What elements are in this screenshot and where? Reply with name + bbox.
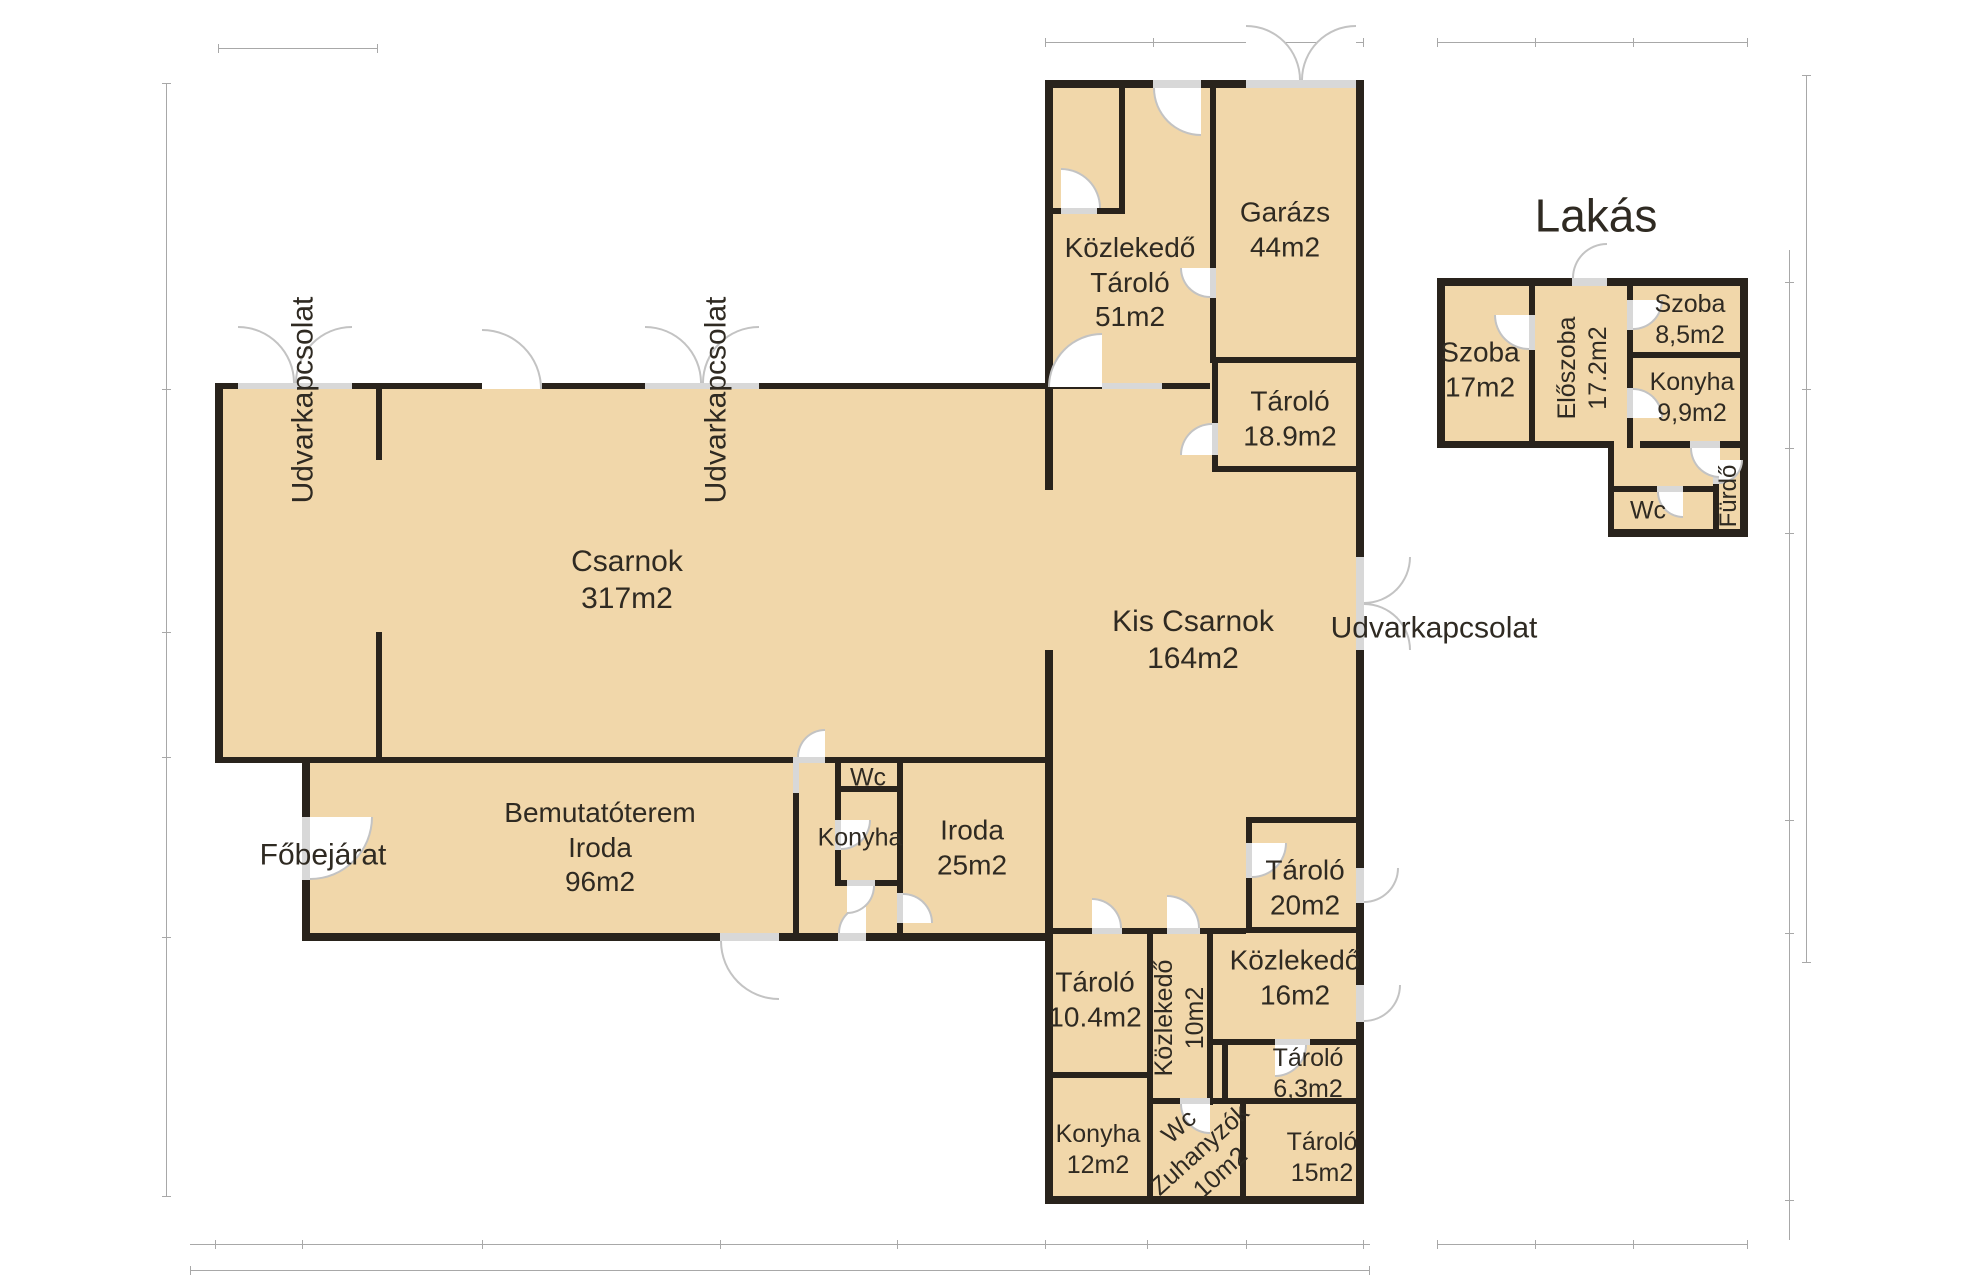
door-opening: [1167, 928, 1200, 934]
dimension-line: [1789, 250, 1790, 1240]
wall-segment: [1633, 352, 1740, 358]
door-opening: [793, 757, 799, 793]
room-name: Előszoba: [1552, 317, 1583, 420]
wall-segment: [1045, 928, 1092, 934]
wall-segment: [1607, 278, 1748, 286]
dimension-tick: [1437, 38, 1438, 47]
wall-segment: [1529, 286, 1535, 315]
room-area: 17m2: [1440, 370, 1519, 405]
room-area: 164m2: [1112, 640, 1274, 677]
wall-segment: [376, 383, 382, 460]
wall-segment: [1246, 927, 1364, 933]
door-opening: [1061, 208, 1097, 214]
room-name: Csarnok: [571, 543, 683, 580]
dimension-line: [1437, 1244, 1748, 1245]
door-opening: [797, 757, 825, 763]
site-label-udvarkapcsolat-mid: Udvarkapcsolat: [697, 297, 734, 504]
wall-segment: [1045, 650, 1053, 1203]
wall-segment: [1246, 817, 1364, 823]
door-swing-arc: [1364, 985, 1401, 1022]
room-area: 9,9m2: [1650, 398, 1735, 429]
dimension-tick: [302, 1240, 303, 1249]
room-area: 18.9m2: [1243, 419, 1336, 454]
room-area: 6,3m2: [1273, 1074, 1344, 1105]
dimension-tick: [218, 44, 219, 53]
dimension-tick: [190, 1266, 191, 1275]
door-swing-arc: [1301, 25, 1356, 80]
wall-segment: [1201, 80, 1246, 88]
wall-segment: [352, 383, 482, 389]
room-name: Közlekedő: [1230, 943, 1361, 978]
room-name: Tároló: [1287, 1127, 1358, 1158]
room-name: Tároló: [1048, 965, 1141, 1000]
dimension-tick: [1802, 389, 1811, 390]
dimension-tick: [1153, 38, 1154, 47]
door-opening: [1102, 383, 1162, 389]
room-name: Konyha: [1650, 367, 1735, 398]
wall-segment: [1614, 486, 1657, 492]
room-label-wc-lakas: Wc: [1630, 496, 1666, 527]
room-name: Iroda: [504, 831, 695, 866]
dimension-tick: [1147, 1240, 1148, 1249]
room-area: 17.2m2: [1583, 317, 1614, 420]
dimension-tick: [162, 1196, 171, 1197]
room-area: 10m2: [1180, 960, 1211, 1077]
dimension-line: [190, 1244, 1370, 1245]
wall-segment: [1212, 466, 1364, 472]
room-area: 8,5m2: [1655, 320, 1726, 351]
door-swing-arc: [1572, 243, 1607, 278]
wall-segment: [1045, 208, 1061, 214]
room-label-kozlekedo10: Közlekedő 10m2: [1149, 960, 1211, 1077]
room-name: Szoba: [1440, 335, 1519, 370]
door-opening: [1212, 423, 1218, 455]
dimension-tick: [162, 757, 171, 758]
door-opening: [1356, 868, 1364, 903]
wall-segment: [1356, 650, 1364, 823]
door-opening: [1092, 928, 1122, 934]
dimension-tick: [162, 389, 171, 390]
door-swing-arc: [1364, 868, 1399, 903]
door-opening: [1210, 268, 1216, 298]
room-label-tarolo15: Tároló 15m2: [1287, 1127, 1358, 1189]
wall-segment: [542, 383, 645, 389]
site-label-udvarkapcsolat-left: Udvarkapcsolat: [284, 297, 321, 504]
door-swing-arc: [645, 326, 702, 383]
dimension-tick: [1437, 1240, 1438, 1249]
room-name: Bemutatóterem: [504, 796, 695, 831]
room-name: Szoba: [1655, 289, 1726, 320]
dimension-tick: [162, 83, 171, 84]
room-area: 15m2: [1287, 1158, 1358, 1189]
room-name: Tároló: [1273, 1043, 1344, 1074]
wall-segment: [1356, 478, 1364, 557]
dimension-tick: [897, 1240, 898, 1249]
dimension-tick: [1802, 962, 1811, 963]
wall-segment: [1216, 357, 1356, 363]
room-name: Konyha: [1056, 1119, 1141, 1150]
room-name: Iroda: [937, 813, 1007, 848]
dimension-tick: [1747, 38, 1748, 47]
room-area: 25m2: [937, 848, 1007, 883]
wall-segment: [1356, 823, 1364, 868]
wall-segment: [793, 793, 799, 941]
door-opening: [1153, 80, 1201, 88]
door-opening: [1572, 278, 1607, 286]
dimension-tick: [720, 1240, 721, 1249]
dimension-tick: [1369, 1266, 1370, 1275]
room-label-konyha12: Konyha 12m2: [1056, 1119, 1141, 1181]
room-label-kozlekedo-tarolo: Közlekedő Tároló 51m2: [1065, 231, 1196, 335]
wall-segment: [302, 880, 310, 941]
wall-segment: [302, 933, 720, 941]
room-label-iroda: Iroda 25m2: [937, 813, 1007, 882]
door-swing-arc: [1364, 557, 1411, 604]
door-opening: [838, 933, 866, 941]
wall-segment: [1122, 928, 1167, 934]
dimension-tick: [1785, 282, 1794, 283]
wall-segment: [1356, 903, 1364, 933]
wall-segment: [1051, 1072, 1147, 1078]
room-name: Tároló: [1065, 266, 1196, 301]
dimension-line: [1806, 75, 1807, 963]
wall-segment: [1162, 383, 1210, 389]
wall-segment: [1210, 88, 1216, 268]
dimension-tick: [162, 937, 171, 938]
wall-segment: [1627, 330, 1633, 388]
door-opening: [720, 933, 779, 941]
room-label-kis-csarnok: Kis Csarnok 164m2: [1112, 603, 1274, 677]
dimension-tick: [162, 632, 171, 633]
dimension-tick: [1363, 1240, 1364, 1249]
dimension-line: [218, 48, 378, 49]
room-label-tarolo63: Tároló 6,3m2: [1273, 1043, 1344, 1105]
wall-segment: [1627, 418, 1633, 448]
room-label-bemutatoterem: Bemutatóterem Iroda 96m2: [504, 796, 695, 900]
wall-segment: [1212, 363, 1218, 423]
room-name: Kis Csarnok: [1112, 603, 1274, 640]
dimension-tick: [1535, 1240, 1536, 1249]
wall-segment: [1246, 823, 1252, 843]
door-opening: [1529, 315, 1535, 350]
dimension-tick: [1045, 38, 1046, 47]
door-opening: [1690, 441, 1720, 448]
wall-segment: [779, 933, 838, 941]
wall-segment: [1437, 278, 1572, 286]
wall-segment: [1437, 441, 1608, 448]
wall-segment: [835, 880, 847, 886]
wall-segment: [1640, 441, 1690, 448]
dimension-line: [166, 83, 167, 1197]
door-swing-arc: [720, 941, 779, 1000]
dimension-tick: [1785, 448, 1794, 449]
room-name: Tároló: [1265, 853, 1344, 888]
wall-segment: [1356, 80, 1364, 478]
dimension-tick: [1363, 38, 1364, 47]
door-swing-arc: [1246, 25, 1301, 80]
wall-segment: [759, 383, 1053, 389]
room-area: 51m2: [1065, 300, 1196, 335]
dimension-tick: [215, 1240, 216, 1249]
room-label-tarolo104: Tároló 10.4m2: [1048, 965, 1141, 1034]
room-area: 10.4m2: [1048, 1000, 1141, 1035]
room-area: 20m2: [1265, 888, 1344, 923]
wall-segment: [875, 880, 903, 886]
room-name: Közlekedő: [1149, 960, 1180, 1077]
dimension-tick: [1747, 1240, 1748, 1249]
room-label-konyha99: Konyha 9,9m2: [1650, 367, 1735, 429]
dimension-tick: [1785, 1200, 1794, 1201]
room-label-szoba17: Szoba 17m2: [1440, 335, 1519, 404]
wall-segment: [1045, 80, 1153, 88]
dimension-tick: [1785, 933, 1794, 934]
dimension-tick: [1802, 75, 1811, 76]
room-label-konyha-kicsi: Konyha: [818, 823, 903, 854]
wall-segment: [1045, 80, 1053, 490]
dimension-tick: [1633, 1240, 1634, 1249]
dimension-tick: [1785, 820, 1794, 821]
wall-segment: [1210, 298, 1216, 363]
dimension-line: [1437, 42, 1748, 43]
wall-segment: [897, 923, 903, 941]
wall-segment: [1097, 208, 1125, 214]
dimension-tick: [1633, 38, 1634, 47]
site-label-fobejarat: Főbejárat: [260, 836, 387, 873]
room-area: 317m2: [571, 580, 683, 617]
wall-segment: [866, 933, 1047, 941]
wall-segment: [215, 383, 223, 763]
wall-segment: [1529, 350, 1535, 448]
dimension-line: [190, 1270, 1370, 1271]
room-label-tarolo189: Tároló 18.9m2: [1243, 384, 1336, 453]
room-label-furdo: Fürdő: [1714, 465, 1744, 528]
wall-segment: [1153, 1098, 1180, 1104]
room-area: 44m2: [1240, 230, 1330, 265]
dimension-tick: [1045, 1240, 1046, 1249]
site-label-udvarkapcsolat-right: Udvarkapcsolat: [1331, 609, 1538, 646]
door-opening: [1246, 80, 1356, 88]
room-label-kozlekedo16: Közlekedő 16m2: [1230, 943, 1361, 1012]
room-label-tarolo20: Tároló 20m2: [1265, 853, 1344, 922]
wall-segment: [835, 793, 841, 820]
room-name: Garázs: [1240, 195, 1330, 230]
dimension-tick: [377, 44, 378, 53]
room-label-eloszoba: Előszoba 17.2m2: [1552, 317, 1614, 420]
dimension-tick: [1535, 38, 1536, 47]
wall-segment: [376, 632, 382, 763]
wall-segment: [302, 757, 310, 817]
wall-segment: [1627, 286, 1633, 300]
wall-segment: [1608, 529, 1748, 537]
room-label-wc-kicsi: Wc: [850, 763, 886, 794]
room-label-garazs: Garázs 44m2: [1240, 195, 1330, 264]
room-area: 16m2: [1230, 978, 1361, 1013]
apartment-title: Lakás: [1535, 187, 1658, 244]
room-label-csarnok: Csarnok 317m2: [571, 543, 683, 617]
room-area: 96m2: [504, 865, 695, 900]
room-name: Közlekedő: [1065, 231, 1196, 266]
wall-segment: [1119, 88, 1125, 208]
dimension-tick: [1246, 1240, 1247, 1249]
room-name: Tároló: [1243, 384, 1336, 419]
wall-segment: [1246, 878, 1252, 933]
room-label-szoba85: Szoba 8,5m2: [1655, 289, 1726, 351]
dimension-tick: [482, 1240, 483, 1249]
floor-plan: Csarnok 317m2 Kis Csarnok 164m2 Garázs 4…: [0, 0, 1985, 1280]
wall-segment: [1683, 486, 1713, 492]
door-swing-arc: [482, 329, 542, 389]
dimension-tick: [1785, 533, 1794, 534]
